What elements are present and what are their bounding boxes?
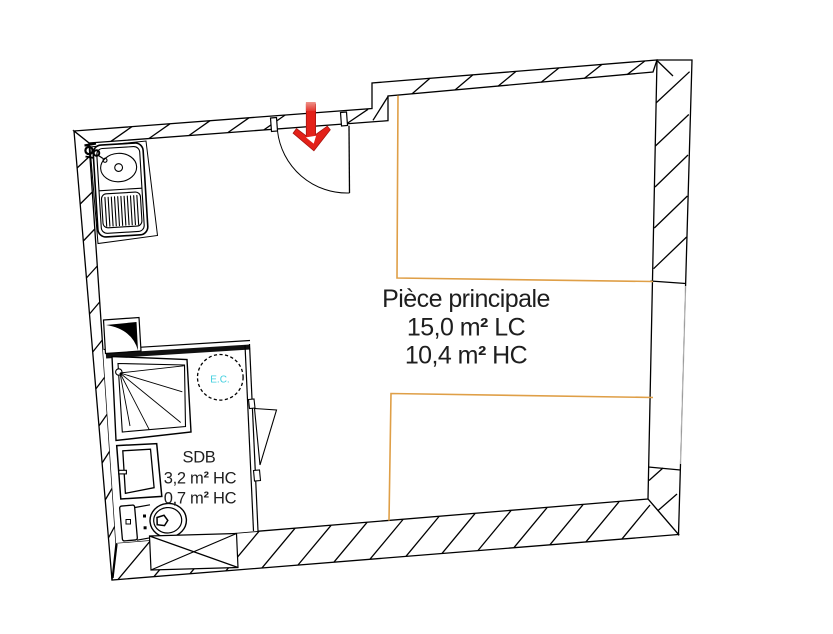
svg-text:3,2 m² HC: 3,2 m² HC	[164, 470, 237, 488]
svg-text:15,0 m² LC: 15,0 m² LC	[407, 314, 526, 342]
svg-text:E.C.: E.C.	[210, 375, 229, 386]
svg-text:0,7 m² HC: 0,7 m² HC	[164, 490, 237, 508]
svg-text:Pièce principale: Pièce principale	[382, 285, 550, 313]
svg-text:SDB: SDB	[182, 449, 215, 467]
svg-text:10,4 m² HC: 10,4 m² HC	[405, 342, 528, 370]
